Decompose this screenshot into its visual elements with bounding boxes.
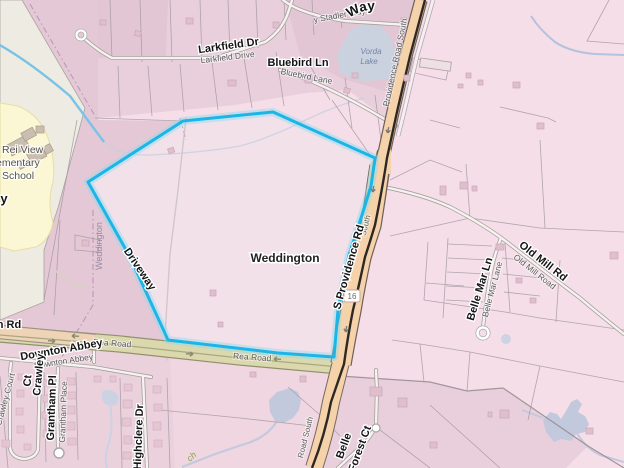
svg-text:n Rd: n Rd (0, 319, 21, 331)
svg-text:Lake: Lake (360, 57, 378, 66)
svg-text:Grantham Pl: Grantham Pl (45, 375, 59, 441)
svg-text:Ct: Ct (22, 374, 35, 387)
svg-text:Weddington: Weddington (250, 251, 319, 265)
svg-text:ementary: ementary (0, 157, 41, 169)
svg-text:Highclere Dr: Highclere Dr (132, 403, 146, 468)
svg-text:Weddington: Weddington (94, 222, 104, 270)
svg-text:Vorda: Vorda (360, 47, 382, 56)
svg-text:16: 16 (348, 292, 357, 301)
svg-text:School: School (2, 170, 34, 182)
svg-text:Bluebird Ln: Bluebird Ln (267, 57, 328, 69)
svg-text:y: y (0, 191, 8, 206)
svg-text:Rei View: Rei View (2, 144, 44, 156)
